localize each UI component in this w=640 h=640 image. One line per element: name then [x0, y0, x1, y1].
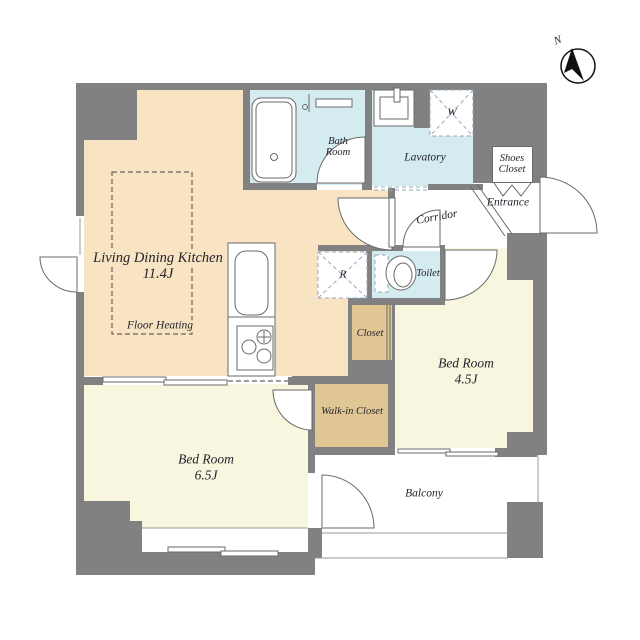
label-ldk-title: Living Dining Kitchen [91, 251, 225, 266]
plan-linework [0, 0, 640, 640]
window-bed45-pane2 [446, 452, 498, 456]
label-shoes-closet-2: Closet [499, 165, 526, 176]
window-bed65-pane2 [221, 551, 278, 556]
label-lavatory: Lavatory [404, 152, 446, 164]
door-leaf-ldk-corridor [389, 198, 395, 247]
kitchen-sink [235, 251, 268, 315]
label-toilet: Toilet [416, 269, 440, 280]
door-arc-balcony [322, 475, 374, 528]
shower-head [303, 105, 308, 110]
label-bedroom45-size: 4.5J [455, 372, 478, 386]
window-bed45-pane1 [398, 449, 450, 453]
floor-plan: Living Dining Kitchen 11.4J Floor Heatin… [0, 0, 640, 640]
vanity-faucet [394, 88, 400, 102]
door-arc-entrance [540, 177, 597, 233]
window-bed65-pane1 [168, 547, 225, 552]
label-refrigerator: R [340, 270, 347, 281]
label-bedroom65-size: 6.5J [195, 468, 218, 482]
label-bedroom45-name: Bed Room [438, 356, 494, 370]
label-walk-in-closet: Walk-in Closet [321, 407, 383, 418]
entrance-step-line-1 [470, 186, 505, 236]
door-arc-bedroom45 [445, 250, 497, 300]
slider-ldk-bed65-pane1 [103, 377, 166, 382]
label-ldk-size: 11.4J [141, 267, 176, 282]
label-entrance: Entrance [487, 197, 529, 209]
label-bathroom-1: Bath [328, 137, 348, 148]
slider-ldk-bed65-pane2 [164, 380, 227, 385]
bath-counter [316, 99, 352, 107]
bathtub [252, 98, 296, 182]
label-shoes-closet-1: Shoes [500, 154, 525, 165]
door-arc-left-exterior [40, 257, 77, 292]
label-floor-heating: Floor Heating [124, 320, 196, 332]
label-bathroom-2: Room [326, 148, 351, 159]
door-arc-walk-in-closet [273, 390, 312, 430]
label-bedroom65-name: Bed Room [178, 452, 234, 466]
shoes-closet-fold-icon [494, 183, 531, 196]
door-arc-ldk-corridor [338, 198, 392, 250]
label-washer: W [447, 108, 456, 119]
label-closet: Closet [357, 329, 384, 340]
label-balcony: Balcony [405, 488, 443, 500]
